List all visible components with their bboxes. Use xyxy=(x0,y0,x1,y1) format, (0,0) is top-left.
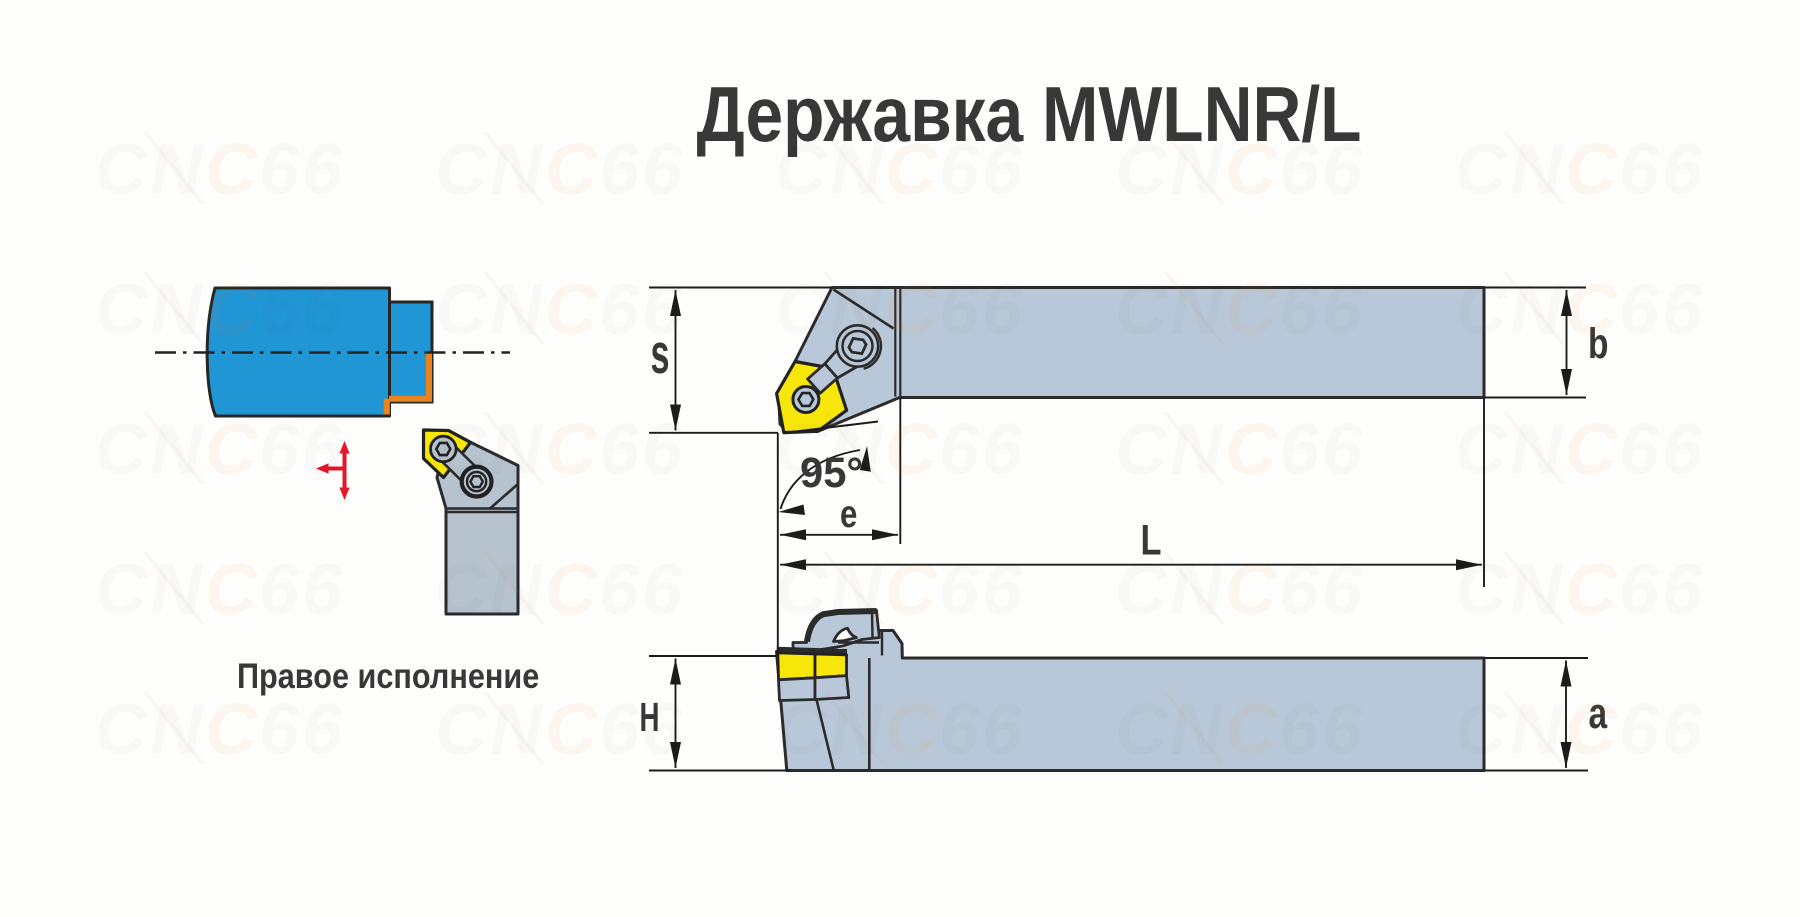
svg-text:e: e xyxy=(840,493,857,536)
